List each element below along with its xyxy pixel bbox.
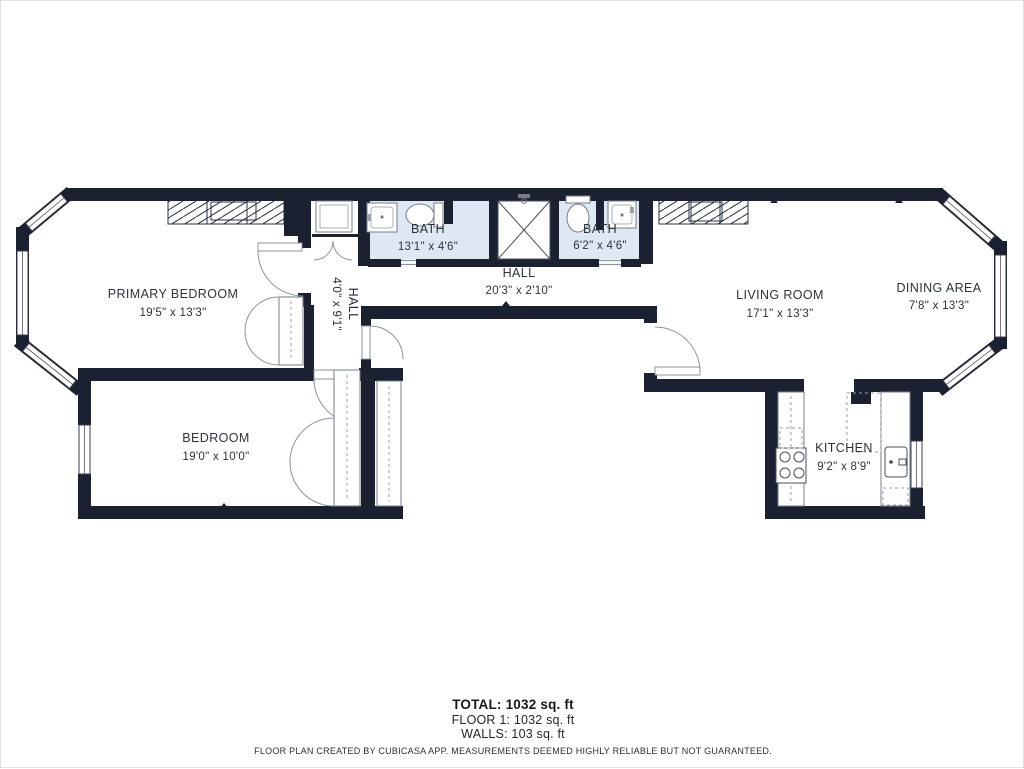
room-name: LIVING ROOM [736,288,824,302]
summary-floor: FLOOR 1: 1032 sq. ft [452,713,575,727]
room-dims: 4'0" x 9'1" [330,277,342,331]
room-name: BATH [411,222,445,236]
room-label-bedroom: BEDROOM 19'0" x 10'0" [182,431,249,463]
utility-shaft [377,381,401,506]
closet-hatch-primary-bedroom [168,198,284,224]
room-name: PRIMARY BEDROOM [108,287,239,301]
window-right-bay [995,255,1006,337]
door-entry [362,326,403,359]
room-dims: 6'2" x 4'6" [573,240,627,252]
room-label-hall-vertical: HALL 4'0" x 9'1" [330,277,360,331]
floor-plan-page: PRIMARY BEDROOM 19'5" x 13'3" BEDROOM 19… [0,0,1024,768]
shower-head [518,194,530,198]
room-name: HALL [503,266,536,280]
window-left-bay [17,251,28,335]
floor-plan-svg: PRIMARY BEDROOM 19'5" x 13'3" BEDROOM 19… [1,1,1024,769]
room-label-dining-area: DINING AREA 7'8" x 13'3" [897,281,982,312]
room-name: KITCHEN [815,441,873,455]
room-label-living-room: LIVING ROOM 17'1" x 13'3" [736,288,824,320]
room-dims: 19'0" x 10'0" [183,451,250,463]
kitchen-sink [885,447,907,477]
room-dims: 17'1" x 13'3" [747,308,814,320]
door-hall-to-primary-bedroom [258,243,303,296]
room-dims: 20'3" x 2'10" [486,285,553,297]
room-name: BATH [583,222,617,236]
disclaimer-text: FLOOR PLAN CREATED BY CUBICASA APP. MEAS… [254,746,772,756]
door-living-room [655,327,700,375]
shower [498,194,550,259]
bay-window-left-bottom [14,336,85,396]
closet-hatch-living-room [659,198,748,224]
closet-bedroom [290,370,360,506]
bay-window-left-top [18,187,75,238]
window-bedroom [79,425,90,474]
room-name: HALL [346,288,360,321]
room-dims: 13'1" x 4'6" [398,241,458,253]
room-name: DINING AREA [897,281,982,295]
washer-closet [314,201,352,260]
room-dims: 7'8" x 13'3" [909,300,969,312]
room-label-primary-bedroom: PRIMARY BEDROOM 19'5" x 13'3" [108,287,239,319]
bay-window-right-bottom [934,338,1004,396]
summary-block: TOTAL: 1032 sq. ft FLOOR 1: 1032 sq. ft … [254,697,772,756]
room-label-kitchen: KITCHEN 9'2" x 8'9" [815,441,873,473]
sliding-door-bath-left [401,261,416,265]
room-label-hall-horizontal: HALL 20'3" x 2'10" [486,266,553,297]
sliding-door-bath-right [599,261,621,265]
window-kitchen [911,441,922,488]
summary-walls: WALLS: 103 sq. ft [461,727,565,741]
room-name: BEDROOM [182,431,249,445]
bay-window-right-top [934,188,1004,252]
washer [316,201,352,232]
room-dims: 19'5" x 13'3" [140,307,207,319]
closet-primary-bedroom [245,297,303,365]
room-dims: 9'2" x 8'9" [817,461,871,473]
summary-total: TOTAL: 1032 sq. ft [452,697,574,712]
